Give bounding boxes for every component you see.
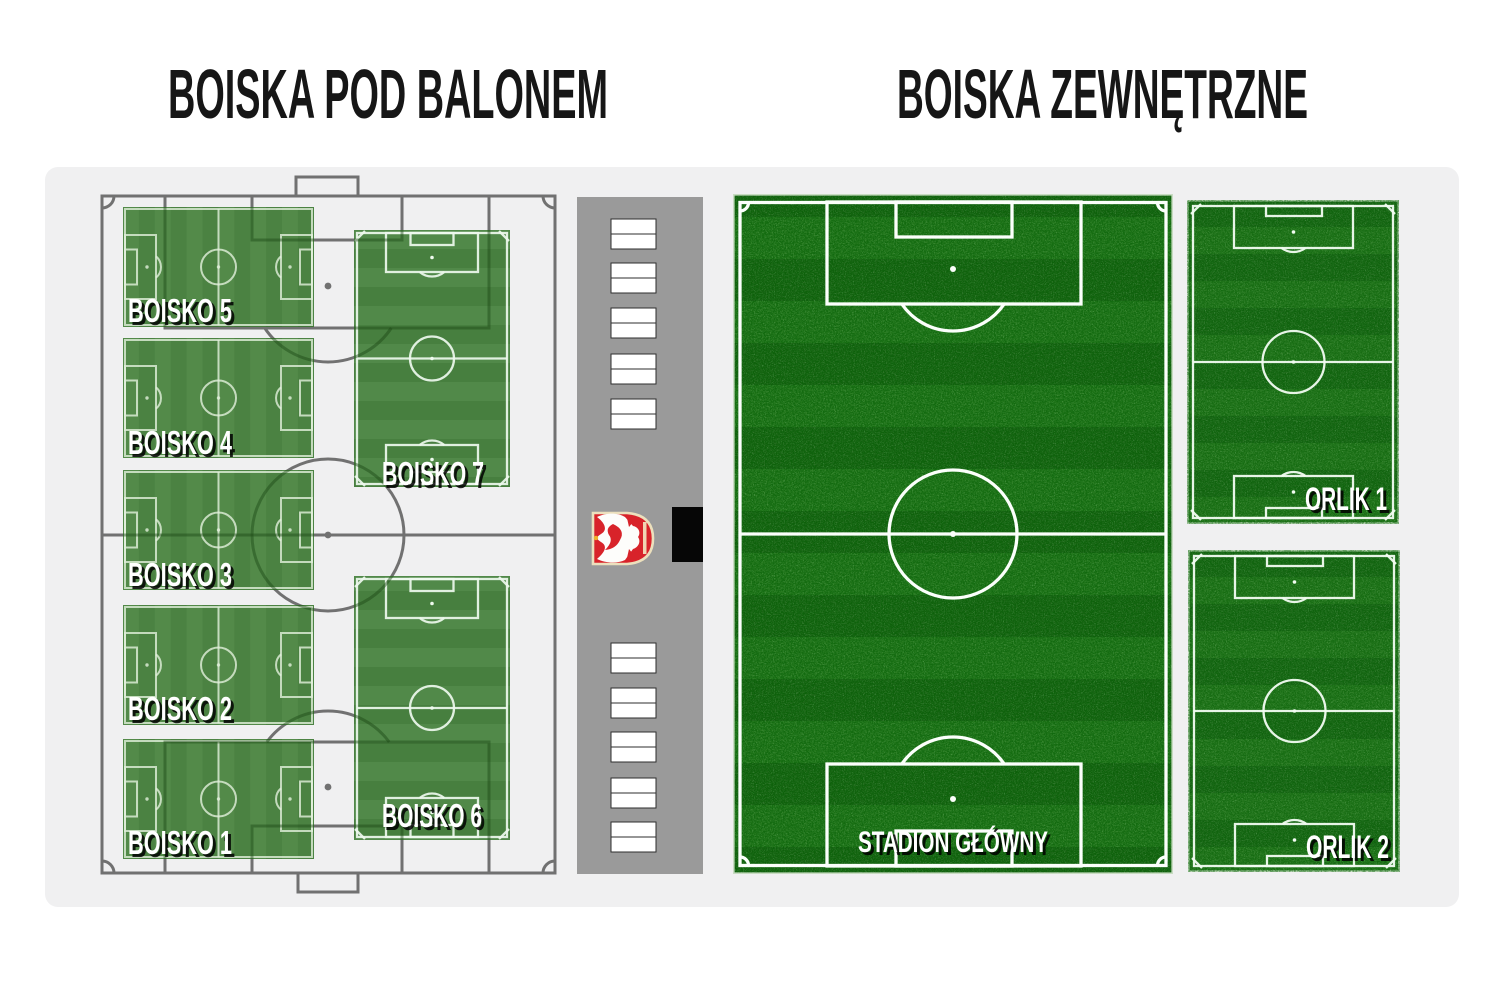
- svg-text:ORLIK 2: ORLIK 2: [1306, 829, 1389, 865]
- svg-text:BOISKO 4: BOISKO 4: [128, 424, 232, 461]
- svg-text:BOISKO 1: BOISKO 1: [128, 824, 232, 861]
- svg-text:BOISKO 2: BOISKO 2: [128, 690, 232, 727]
- svg-text:BOISKO 5: BOISKO 5: [128, 292, 232, 329]
- svg-text:BOISKO 3: BOISKO 3: [128, 556, 232, 593]
- svg-text:STADION GŁÓWNY: STADION GŁÓWNY: [858, 825, 1048, 859]
- svg-text:BOISKA ZEWNĘTRZNE: BOISKA ZEWNĘTRZNE: [897, 55, 1308, 133]
- svg-text:ORLIK 1: ORLIK 1: [1305, 481, 1387, 517]
- svg-text:BOISKO 7: BOISKO 7: [382, 455, 484, 492]
- svg-text:BOISKO 6: BOISKO 6: [382, 797, 482, 834]
- svg-text:BOISKA POD BALONEM: BOISKA POD BALONEM: [168, 55, 608, 133]
